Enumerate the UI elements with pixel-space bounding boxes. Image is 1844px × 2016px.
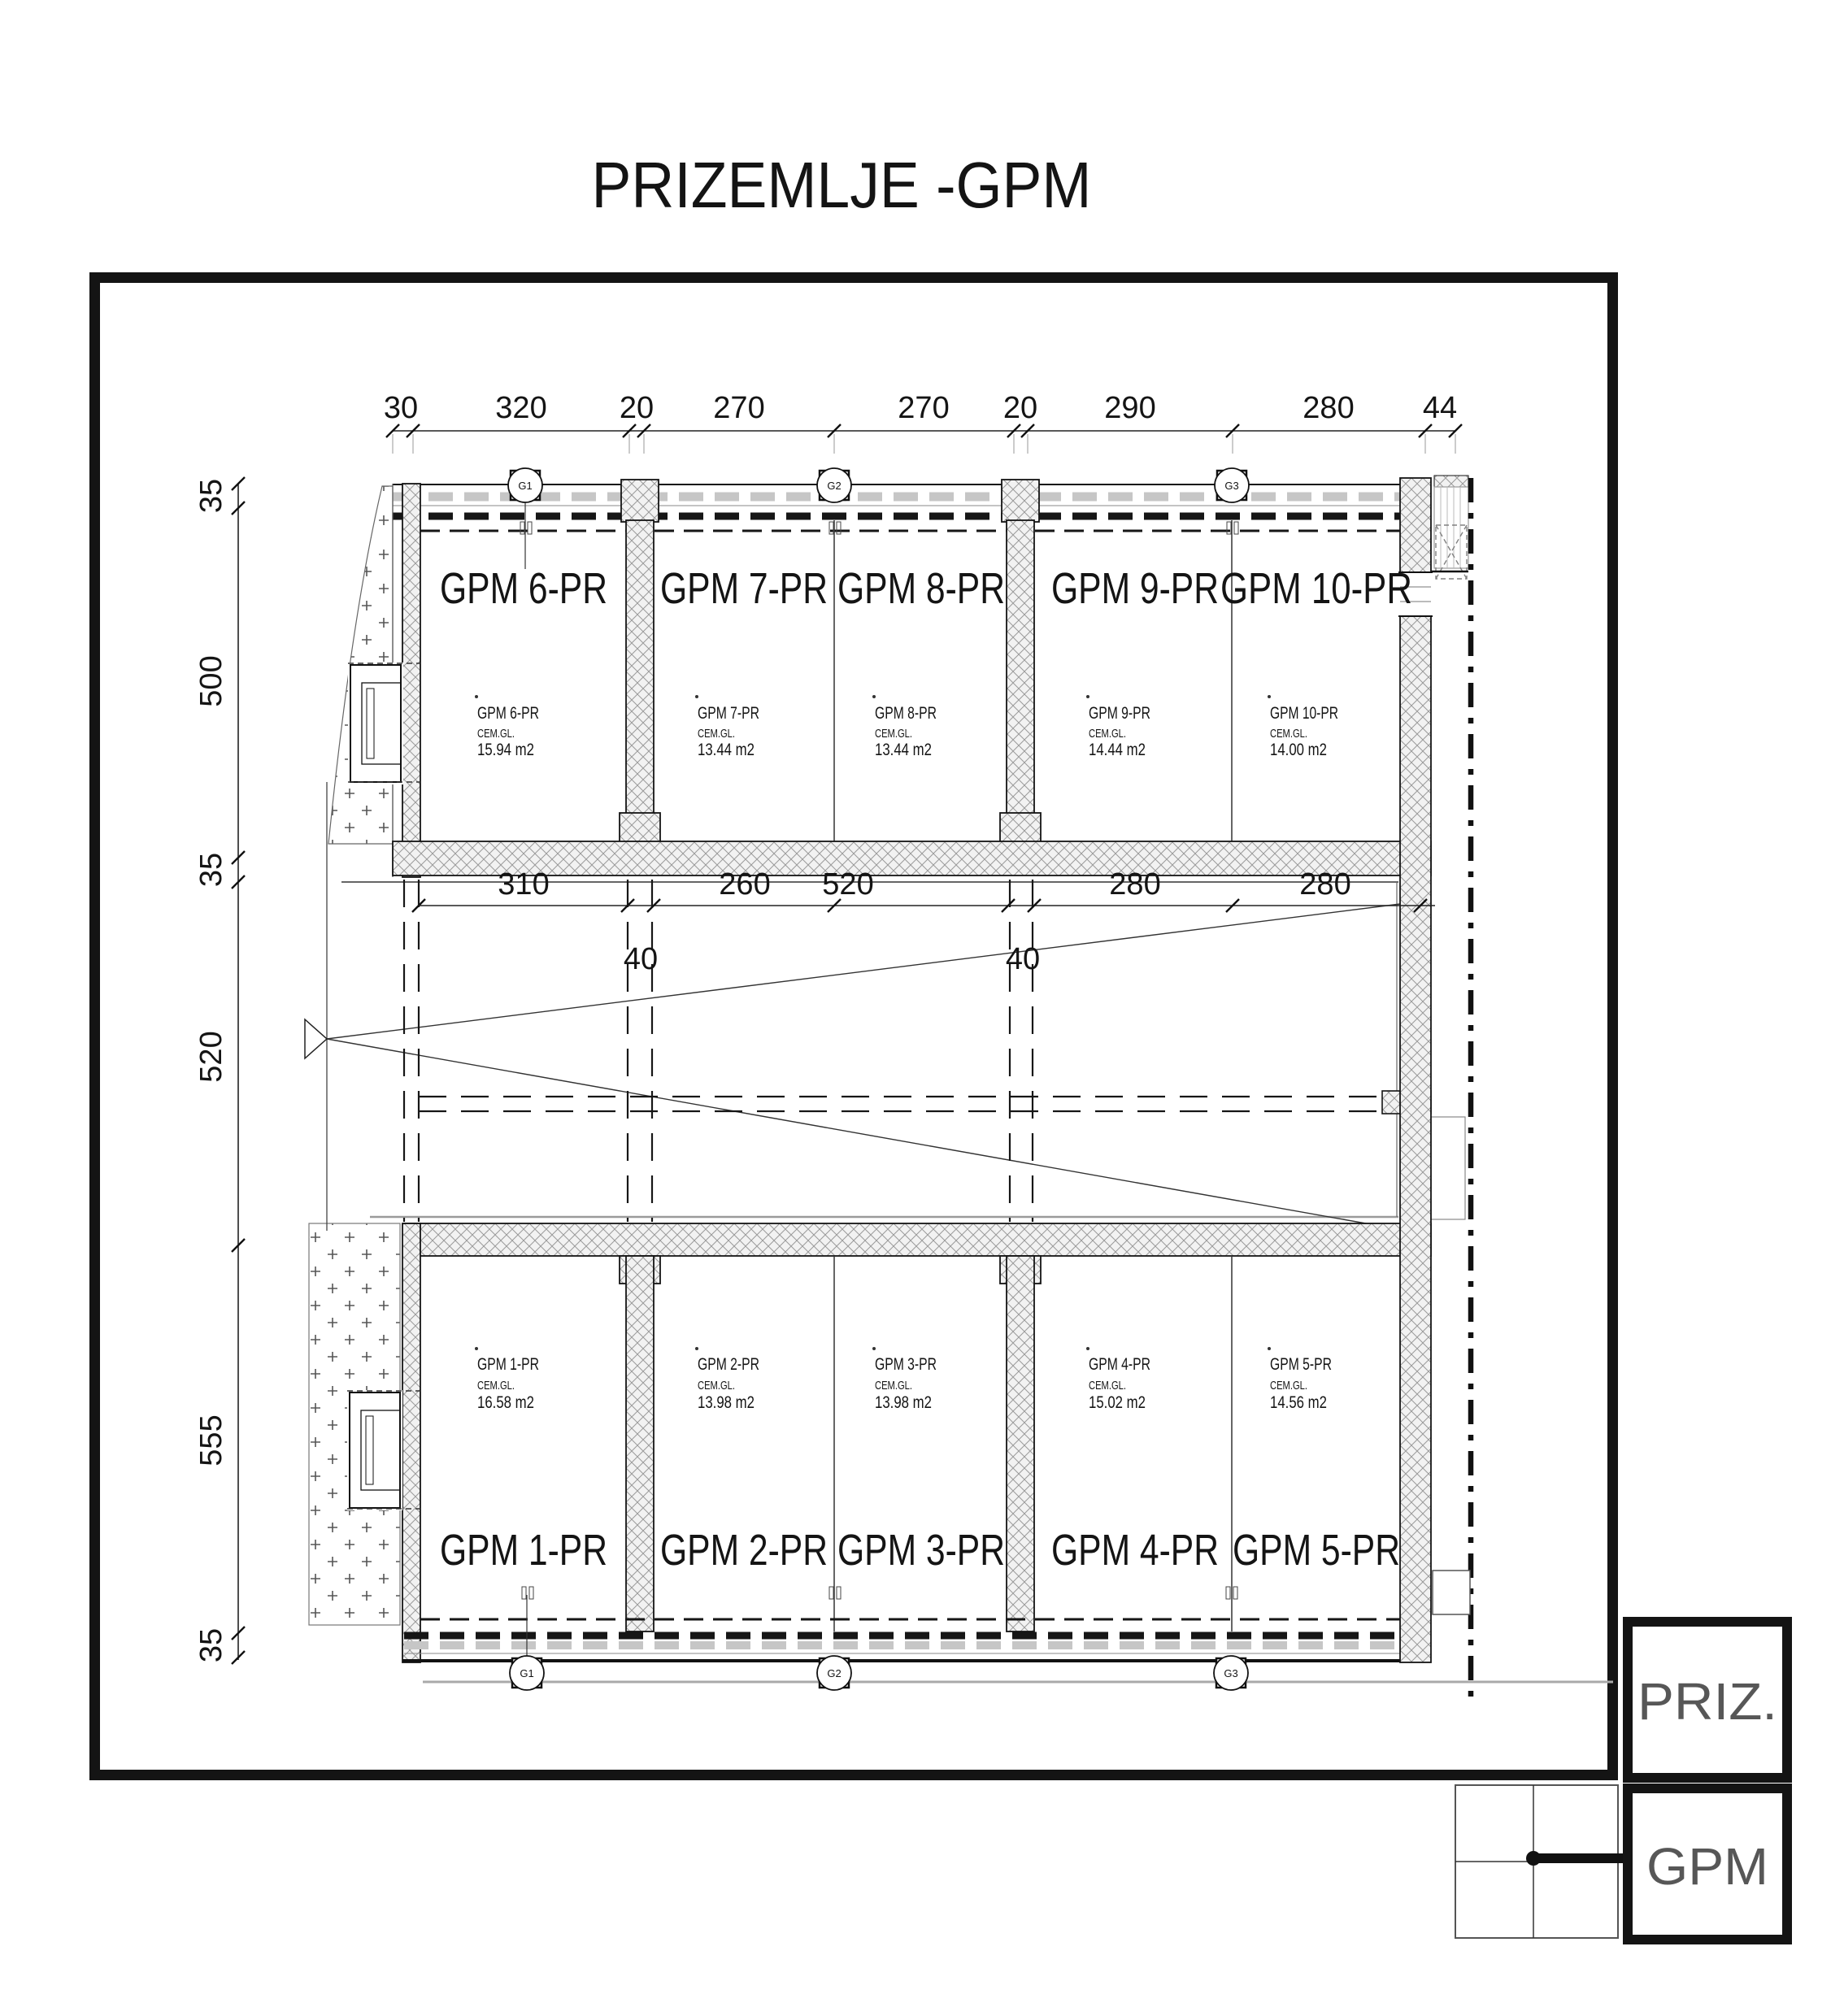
- unit-title: GPM 8-PR: [837, 564, 1005, 613]
- unit-area: 13.44 m2: [875, 741, 932, 759]
- dimension-middle: 310 260 520 280 280 40 40: [412, 867, 1435, 976]
- sheet-label: GPM: [1646, 1837, 1768, 1896]
- dim-label: 280: [1109, 867, 1160, 902]
- dim-label: 35: [194, 479, 228, 513]
- floor-label-box: PRIZ.: [1628, 1622, 1787, 1778]
- wall-left-top-row: [402, 484, 420, 877]
- unit-info-gpm9: GPM 9-PR CEM.GL. 14.44 m2: [1089, 704, 1150, 759]
- unit-area: 15.94 m2: [477, 741, 534, 759]
- unit-finish: CEM.GL.: [477, 727, 515, 741]
- dim-label: 44: [1423, 391, 1457, 425]
- grid-markers: G1 G2 G3 G1 G2: [508, 468, 1249, 1690]
- stairs: [1434, 487, 1468, 568]
- unit-info-gpm3: GPM 3-PR CEM.GL. 13.98 m2: [875, 1355, 937, 1412]
- dim-label: 270: [898, 391, 949, 425]
- unit-title: GPM 7-PR: [660, 564, 828, 613]
- unit-name: GPM 8-PR: [875, 704, 937, 723]
- unit-finish: CEM.GL.: [477, 1379, 515, 1393]
- unit-finish: CEM.GL.: [1270, 1379, 1307, 1393]
- unit-info-gpm4: GPM 4-PR CEM.GL. 15.02 m2: [1089, 1355, 1150, 1412]
- unit-name: GPM 5-PR: [1270, 1355, 1332, 1374]
- unit-area: 14.00 m2: [1270, 741, 1327, 759]
- floor-plan-drawing: PRIZEMLJE -GPM: [0, 0, 1844, 2016]
- hidden-wall-projection-lines: [404, 880, 1382, 1222]
- unit-name: GPM 6-PR: [477, 704, 539, 723]
- ramp-slope-line-lower: [327, 1039, 1389, 1227]
- dim-label: 320: [495, 391, 546, 425]
- unit-title: GPM 4-PR: [1051, 1526, 1219, 1575]
- dim-label: 500: [194, 655, 228, 706]
- dimension-left: 35 500 35 520 555 35: [194, 477, 245, 1664]
- unit-title: GPM 1-PR: [440, 1526, 607, 1575]
- grid-marker-label: G1: [518, 480, 532, 492]
- unit-info-gpm10: GPM 10-PR CEM.GL. 14.00 m2: [1270, 704, 1338, 759]
- unit-title: GPM 9-PR: [1051, 564, 1219, 613]
- grid-marker-label: G2: [827, 480, 841, 492]
- wall-top-bottom-row: [404, 1223, 1431, 1256]
- unit-info-gpm8: GPM 8-PR CEM.GL. 13.44 m2: [875, 704, 937, 759]
- unit-name: GPM 3-PR: [875, 1355, 937, 1374]
- wall-right: [1400, 478, 1431, 1662]
- unit-finish: CEM.GL.: [1089, 727, 1126, 741]
- unit-title: GPM 6-PR: [440, 564, 607, 613]
- dim-label: 520: [822, 867, 873, 902]
- unit-finish: CEM.GL.: [875, 1379, 912, 1393]
- unit-area: 13.98 m2: [698, 1393, 755, 1412]
- dim-label: 310: [498, 867, 549, 902]
- dim-label: 260: [719, 867, 770, 902]
- dim-label: 290: [1104, 391, 1155, 425]
- title-block: PRIZ. GPM: [1455, 1622, 1787, 1940]
- unit-title: GPM 5-PR: [1233, 1526, 1400, 1575]
- dim-label: 280: [1303, 391, 1354, 425]
- dimension-top: 30 320 20 270 270 20 290 280 44: [384, 391, 1462, 454]
- unit-title: GPM 2-PR: [660, 1526, 828, 1575]
- ramp-slope-line-upper: [327, 904, 1400, 1039]
- unit-info-gpm5: GPM 5-PR CEM.GL. 14.56 m2: [1270, 1355, 1332, 1412]
- dim-label: 40: [624, 942, 658, 976]
- unit-area: 14.44 m2: [1089, 741, 1146, 759]
- unit-info-gpm6: GPM 6-PR CEM.GL. 15.94 m2: [477, 704, 539, 759]
- grid-marker-label: G2: [827, 1667, 841, 1679]
- unit-area: 13.98 m2: [875, 1393, 932, 1412]
- page-title: PRIZEMLJE -GPM: [592, 149, 1092, 221]
- unit-name: GPM 1-PR: [477, 1355, 539, 1374]
- garage-row-top: [393, 480, 1431, 877]
- unit-area: 13.44 m2: [698, 741, 755, 759]
- wall-partition: [1007, 520, 1034, 844]
- wall-left-bottom-row: [402, 1223, 420, 1662]
- unit-title: GPM 10-PR: [1220, 564, 1412, 613]
- unit-finish: CEM.GL.: [698, 727, 735, 741]
- unit-area: 16.58 m2: [477, 1393, 534, 1412]
- top-wall-band: [393, 484, 1431, 516]
- dim-label: 35: [194, 1628, 228, 1662]
- dim-label: 30: [384, 391, 418, 425]
- dim-label: 270: [713, 391, 764, 425]
- sheet-label-box: GPM: [1628, 1788, 1787, 1940]
- unit-name: GPM 9-PR: [1089, 704, 1150, 723]
- grid-marker-label: G3: [1224, 480, 1238, 492]
- dim-label: 20: [1003, 391, 1037, 425]
- dim-label: 35: [194, 853, 228, 887]
- unit-info-gpm2: GPM 2-PR CEM.GL. 13.98 m2: [698, 1355, 759, 1412]
- wall-partition: [1007, 1256, 1034, 1631]
- unit-labels-top-row: GPM 6-PR GPM 7-PR GPM 8-PR GPM 9-PR GPM …: [440, 564, 1412, 759]
- wall-partition: [626, 520, 654, 844]
- unit-area: 14.56 m2: [1270, 1393, 1327, 1412]
- unit-finish: CEM.GL.: [1270, 727, 1307, 741]
- bottom-wall-band: [402, 1636, 1431, 1661]
- dim-label: 555: [194, 1414, 228, 1466]
- unit-info-gpm7: GPM 7-PR CEM.GL. 13.44 m2: [698, 704, 759, 759]
- unit-finish: CEM.GL.: [1089, 1379, 1126, 1393]
- dim-label: 520: [194, 1031, 228, 1082]
- floor-label: PRIZ.: [1637, 1672, 1777, 1731]
- dim-label: 280: [1299, 867, 1350, 902]
- unit-finish: CEM.GL.: [875, 727, 912, 741]
- dim-label: 40: [1006, 942, 1040, 976]
- unit-name: GPM 10-PR: [1270, 704, 1338, 723]
- grid-marker-label: G1: [520, 1667, 533, 1679]
- unit-name: GPM 7-PR: [698, 704, 759, 723]
- unit-info-gpm1: GPM 1-PR CEM.GL. 16.58 m2: [477, 1355, 539, 1412]
- ramp-arrow-icon: [305, 1019, 327, 1058]
- unit-area: 15.02 m2: [1089, 1393, 1146, 1412]
- unit-labels-bottom-row: GPM 1-PR CEM.GL. 16.58 m2 GPM 2-PR CEM.G…: [440, 1347, 1400, 1575]
- unit-finish: CEM.GL.: [698, 1379, 735, 1393]
- unit-name: GPM 4-PR: [1089, 1355, 1150, 1374]
- key-plan: [1455, 1785, 1628, 1938]
- right-side: [1398, 476, 1471, 1697]
- unit-name: GPM 2-PR: [698, 1355, 759, 1374]
- unit-title: GPM 3-PR: [837, 1526, 1005, 1575]
- dim-label: 20: [620, 391, 654, 425]
- wall-partition: [626, 1256, 654, 1631]
- grid-marker-label: G3: [1224, 1667, 1237, 1679]
